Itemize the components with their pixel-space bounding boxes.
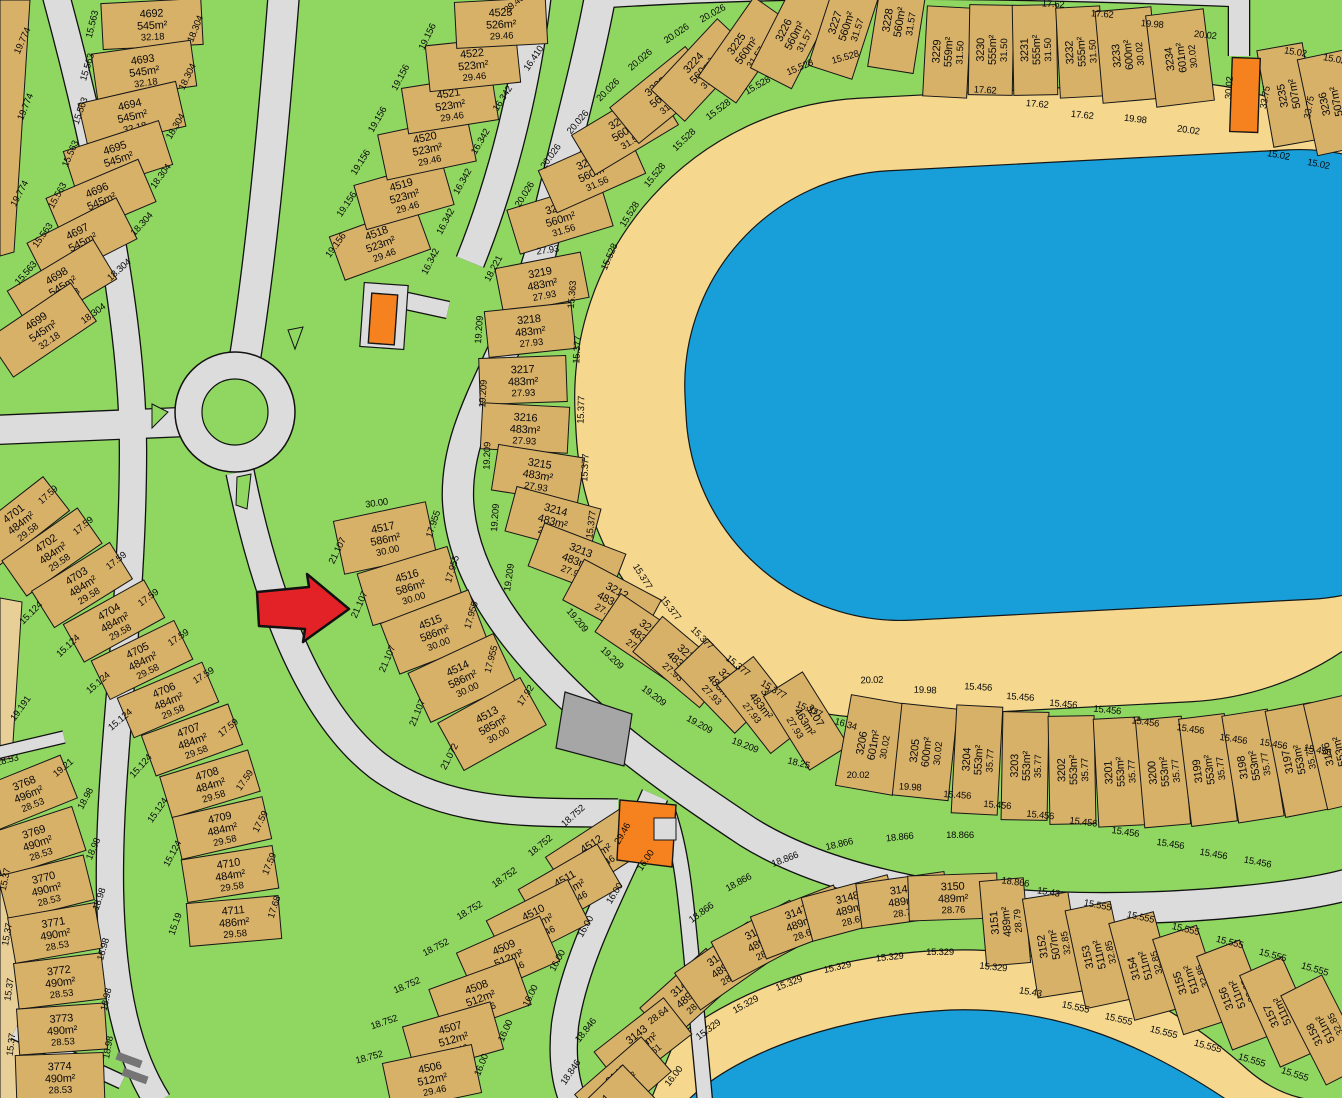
dimension-label: 15.377 xyxy=(571,336,583,364)
lot-3774[interactable]: 3774490m²28.53 xyxy=(15,1052,105,1098)
lot-depth: 28.53 xyxy=(51,1036,75,1049)
dimension-label: 15.456 xyxy=(943,789,972,802)
cadastral-map: 4692545m²32.184693545m²32.184694545m²32.… xyxy=(0,0,1342,1098)
roundabout-island xyxy=(202,379,268,445)
lot-depth: 31.50 xyxy=(999,38,1010,62)
dimension-label: 17.62 xyxy=(973,84,996,96)
dimension-label: 19.209 xyxy=(482,442,494,470)
lot-depth: 35.77 xyxy=(1170,758,1183,783)
dimension-label: 18.866 xyxy=(946,830,974,841)
lot-3773[interactable]: 3773490m²28.53 xyxy=(17,1003,108,1055)
dimension-label: 19.98 xyxy=(898,781,921,793)
lot-depth: 29.46 xyxy=(490,30,514,42)
dimension-label: 19.209 xyxy=(477,380,489,408)
lot-number: 3774 xyxy=(48,1061,72,1074)
lake-water-north xyxy=(674,139,1342,632)
cadastral-map-canvas: 4692545m²32.184693545m²32.184694545m²32.… xyxy=(0,0,1342,1098)
lot-3217[interactable]: 3217483m²27.93 xyxy=(479,355,568,404)
lot-depth: 31.50 xyxy=(954,41,966,65)
lot-area: 489m² xyxy=(938,892,969,905)
lot-3151[interactable]: 3151489m²28.79 xyxy=(979,878,1030,967)
lot-3202[interactable]: 3202553m²35.77 xyxy=(1048,716,1096,825)
lot-3229[interactable]: 3229559m²31.50 xyxy=(923,6,972,98)
lot-depth: 30.02 xyxy=(1134,41,1147,66)
lot-depth: 35.77 xyxy=(1080,758,1091,782)
dimension-label: 17.62 xyxy=(1025,98,1049,111)
dimension-label: 15.456 xyxy=(964,681,992,693)
lot-number: 3230 xyxy=(975,38,987,62)
lot-3230[interactable]: 3230555m²31.50 xyxy=(968,5,1014,96)
lot-depth: 35.77 xyxy=(1033,754,1044,778)
lot-area: 555m² xyxy=(987,34,1000,65)
lot-area: 553m² xyxy=(1068,754,1081,785)
lot-area: 483m² xyxy=(508,375,539,388)
lot-4711[interactable]: 4711486m²29.58 xyxy=(186,896,281,947)
dimension-label: 17.62 xyxy=(1090,8,1113,21)
driveway-notch xyxy=(654,818,676,840)
dimension-label: 20.02 xyxy=(860,675,883,687)
lot-number: 3150 xyxy=(941,881,965,894)
dimension-label: 15.377 xyxy=(579,454,591,482)
lot-depth: 35.77 xyxy=(984,749,996,773)
dimension-label: 19.209 xyxy=(473,316,486,345)
lot-depth: 28.76 xyxy=(941,905,965,917)
dimension-label: 15.329 xyxy=(926,947,954,958)
lot-number: 3231 xyxy=(1019,38,1031,62)
lot-number: 3202 xyxy=(1056,758,1068,782)
lot-3216[interactable]: 3216483m²27.93 xyxy=(480,403,569,453)
dimension-label: 17.62 xyxy=(1041,0,1064,11)
lot-3218[interactable]: 3218483m²27.93 xyxy=(484,303,575,358)
lot-depth: 27.93 xyxy=(512,435,536,447)
lot-depth: 35.77 xyxy=(1126,759,1138,783)
dimension-label: 19.209 xyxy=(489,504,502,533)
lot-depth: 31.50 xyxy=(1043,38,1054,62)
dimension-label: 15.456 xyxy=(1006,691,1035,704)
lot-depth: 29.58 xyxy=(223,928,248,941)
map-viewport: 4692545m²32.184693545m²32.184694545m²32.… xyxy=(0,0,1342,1098)
lot-area: 555m² xyxy=(1031,34,1044,65)
highlighted-lot-orange[interactable] xyxy=(368,293,397,345)
lot-number: 3203 xyxy=(1009,754,1021,778)
dimension-label: 30.02 xyxy=(1223,76,1236,99)
lot-number: 3217 xyxy=(511,364,535,377)
lot-depth: 28.79 xyxy=(1012,908,1025,933)
dimension-label: 15.377 xyxy=(576,396,588,424)
dimension-label: 19.98 xyxy=(1140,18,1164,31)
lot-area: 490m² xyxy=(45,1072,76,1085)
dimension-label: 19.98 xyxy=(914,685,937,697)
lot-depth: 28.53 xyxy=(48,1085,72,1097)
lot-3231[interactable]: 3231555m²31.50 xyxy=(1012,5,1058,96)
road xyxy=(402,300,448,310)
lot-depth: 32.18 xyxy=(141,31,165,43)
lot-depth: 27.93 xyxy=(511,388,535,400)
dimension-label: 20.02 xyxy=(847,770,870,781)
lot-area: 553m² xyxy=(1021,750,1034,781)
